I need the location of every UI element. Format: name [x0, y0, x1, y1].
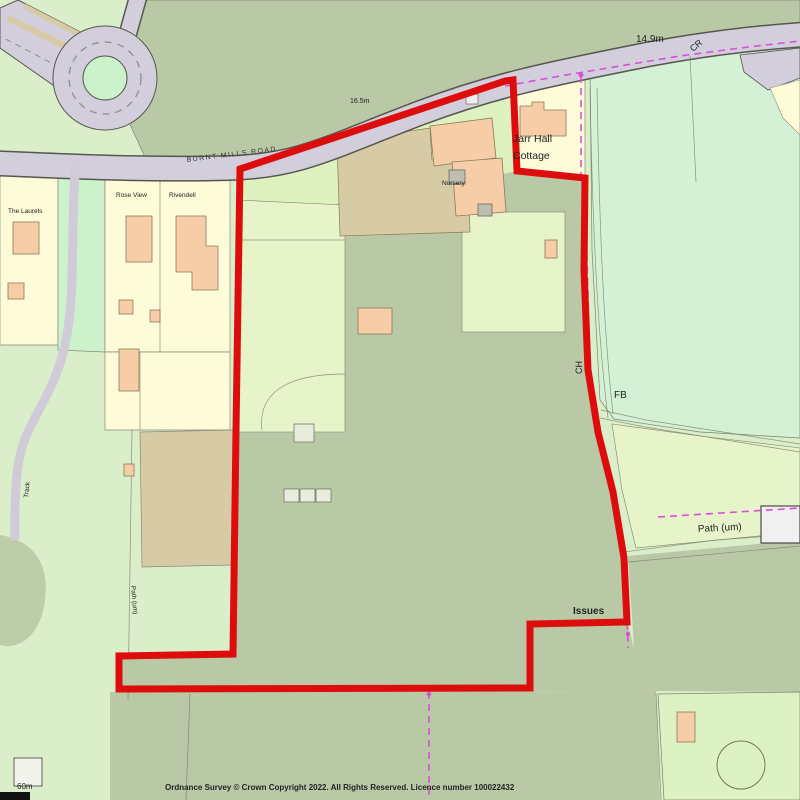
- os-map: BURNT MILLS ROAD 14.9m 16.5m CR CH Jarr …: [0, 0, 800, 800]
- label-issues: Issues: [573, 606, 605, 617]
- allotment-patch: [140, 430, 233, 567]
- field-southeast: [628, 540, 800, 692]
- label-spot-height-east: 14.9m: [636, 34, 664, 45]
- building-right-edge: [761, 506, 800, 543]
- label-ch: CH: [574, 361, 584, 374]
- label-house-mid: Rose View: [116, 192, 147, 199]
- label-house-left: The Laurels: [8, 208, 43, 215]
- label-cottage-1: Jarr Hall: [513, 133, 552, 145]
- field-northeast: [590, 44, 800, 438]
- building-center: [358, 308, 392, 334]
- label-nursery: Nursery: [442, 180, 466, 187]
- copyright-text: Ordnance Survey © Crown Copyright 2022. …: [165, 783, 515, 792]
- label-fb: FB: [614, 390, 627, 401]
- building-the-laurels: [13, 222, 39, 254]
- scale-bar: [0, 792, 30, 800]
- label-spot-height-mid: 16.5m: [350, 98, 370, 105]
- label-path-right: Path (um): [698, 522, 742, 535]
- label-house-right: Rivendell: [169, 192, 196, 199]
- roundabout: [53, 26, 157, 130]
- building-rose-view: [126, 216, 152, 262]
- building-bottom-right: [677, 712, 695, 742]
- building-nursery-1: [430, 118, 496, 166]
- field-bottom-right: [658, 692, 800, 800]
- scale-label: 60m: [17, 782, 33, 791]
- label-cottage-2: Cottage: [513, 150, 550, 162]
